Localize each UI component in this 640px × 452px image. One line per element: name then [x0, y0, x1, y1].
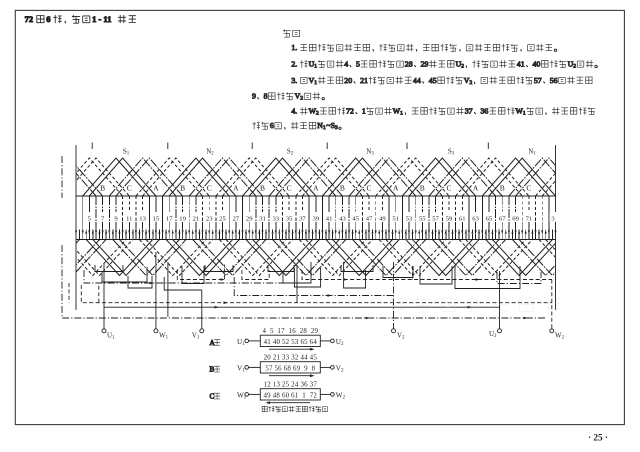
svg-text:37: 37: [465, 107, 473, 116]
svg-text:17: 17: [166, 215, 173, 222]
svg-text:9: 9: [252, 92, 256, 101]
svg-text:A: A: [313, 184, 319, 193]
svg-text:3.: 3.: [291, 76, 297, 85]
svg-text:25: 25: [219, 215, 226, 222]
svg-text:20: 20: [344, 76, 352, 85]
svg-text:6: 6: [270, 121, 274, 130]
svg-text:A: A: [210, 339, 216, 347]
svg-text:C: C: [210, 393, 215, 401]
svg-text:A: A: [153, 184, 159, 193]
svg-text:27: 27: [233, 215, 240, 222]
svg-text:71: 71: [526, 215, 533, 222]
svg-text:A: A: [393, 184, 399, 193]
svg-text:37: 37: [299, 215, 306, 222]
svg-text:51: 51: [392, 215, 399, 222]
svg-text:C: C: [127, 184, 132, 193]
svg-text:12 13 25 24 36 37: 12 13 25 24 36 37: [264, 382, 318, 389]
svg-text:C: C: [287, 184, 292, 193]
svg-text:31: 31: [259, 215, 266, 222]
svg-text:1: 1: [362, 107, 366, 116]
svg-text:39: 39: [313, 215, 320, 222]
svg-text:· 25 ·: · 25 ·: [588, 432, 608, 442]
svg-text:59: 59: [446, 215, 453, 222]
svg-text:43: 43: [339, 215, 346, 222]
svg-text:B: B: [180, 184, 185, 193]
svg-text:63: 63: [472, 215, 479, 222]
svg-text:6: 6: [46, 14, 50, 24]
svg-text:55: 55: [419, 215, 426, 222]
svg-text:C: C: [526, 184, 531, 193]
svg-text:47: 47: [366, 215, 373, 222]
svg-text:A: A: [233, 184, 239, 193]
svg-text:29: 29: [421, 60, 429, 69]
svg-text:B: B: [500, 184, 505, 193]
svg-text:69: 69: [512, 215, 519, 222]
svg-text:53: 53: [406, 215, 413, 222]
svg-text:B: B: [420, 184, 425, 193]
svg-text:20 21 33 32 44 45: 20 21 33 32 44 45: [264, 355, 318, 362]
svg-text:1 - 11: 1 - 11: [92, 14, 111, 24]
svg-text:49: 49: [379, 215, 386, 222]
svg-text:72: 72: [25, 14, 33, 24]
svg-text:B: B: [100, 184, 105, 193]
svg-text:33: 33: [273, 215, 280, 222]
svg-text:C: C: [207, 184, 212, 193]
svg-text:56: 56: [550, 76, 558, 85]
svg-text:28: 28: [405, 60, 413, 69]
svg-text:41 40 52 53 65 64: 41 40 52 53 65 64: [264, 339, 318, 346]
svg-text:C: C: [366, 184, 371, 193]
svg-text:36: 36: [481, 107, 489, 116]
svg-text:C: C: [446, 184, 451, 193]
svg-text:23: 23: [206, 215, 213, 222]
svg-text:4.: 4.: [291, 107, 297, 116]
svg-text:4 5 17 16 28 29: 4 5 17 16 28 29: [262, 328, 318, 335]
svg-text:41: 41: [517, 60, 525, 69]
svg-text:57: 57: [534, 76, 542, 85]
svg-text:B: B: [260, 184, 265, 193]
svg-text:49 48 60 61 1 72: 49 48 60 61 1 72: [264, 393, 318, 400]
svg-text:35: 35: [286, 215, 293, 222]
svg-text:1.: 1.: [291, 43, 297, 52]
svg-text:45: 45: [352, 215, 359, 222]
svg-text:19: 19: [179, 215, 186, 222]
svg-text:11: 11: [126, 215, 132, 222]
svg-text:72: 72: [346, 107, 354, 116]
svg-text:8: 8: [264, 92, 268, 101]
svg-text:67: 67: [499, 215, 506, 222]
svg-text:29: 29: [246, 215, 253, 222]
svg-text:A: A: [473, 184, 479, 193]
svg-text:57: 57: [432, 215, 439, 222]
svg-text:15: 15: [153, 215, 160, 222]
svg-text:44: 44: [413, 76, 421, 85]
svg-text:B: B: [340, 184, 345, 193]
svg-text:5: 5: [356, 60, 360, 69]
svg-text:45: 45: [429, 76, 437, 85]
svg-text:2.: 2.: [291, 60, 297, 69]
svg-text:40: 40: [533, 60, 541, 69]
svg-text:4: 4: [344, 60, 348, 69]
svg-text:41: 41: [326, 215, 333, 222]
svg-text:65: 65: [486, 215, 493, 222]
svg-text:21: 21: [193, 215, 200, 222]
svg-text:13: 13: [139, 215, 146, 222]
svg-text:B: B: [210, 366, 215, 374]
svg-text:61: 61: [459, 215, 466, 222]
svg-text:21: 21: [360, 76, 368, 85]
svg-text:57 56 68 69 9 8: 57 56 68 69 9 8: [265, 366, 315, 373]
